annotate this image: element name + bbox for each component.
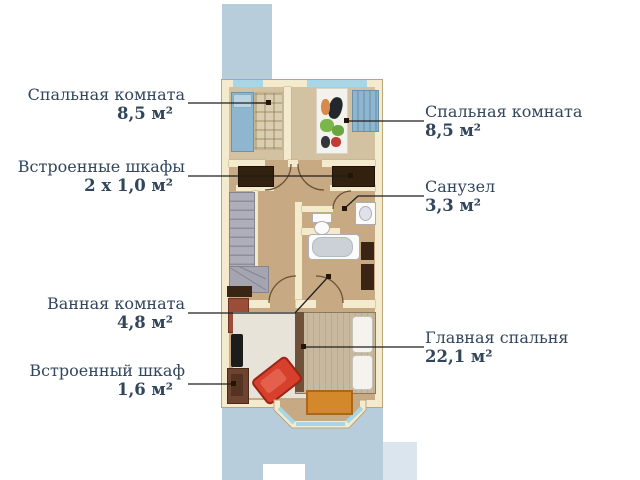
tv-console [231,334,243,367]
bath-cabinet-2 [361,264,374,290]
wall-wc-left [295,202,302,308]
bed-right [352,90,379,132]
washbasin-bowl [359,206,372,221]
bathtub-inner [312,237,353,257]
rug-shape-red [331,137,341,147]
staircase [229,192,255,268]
wall-master-top-3 [343,300,375,308]
room-area: 8,5 м² [425,121,630,141]
room-area: 8,5 м² [0,104,185,124]
built-in-closet-left [238,166,274,187]
room-area: 1,6 м² [0,380,185,400]
room-area: 22,1 м² [425,347,630,367]
label-bedroom-right: Спальная комната 8,5 м² [425,102,630,141]
wall-bedrooms-bottom-2 [288,160,298,167]
built-in-closet-right [332,166,375,187]
wall-bedrooms-divider [284,87,291,160]
room-name: Встроенные шкафы [0,157,185,176]
rug-shape-black-2 [321,136,330,148]
armchair-seat [259,367,287,394]
label-master-bedroom: Главная спальня 22,1 м² [425,328,630,367]
wall-wc-t [302,206,333,212]
master-pillow-2 [352,355,373,390]
rug-patterned [254,92,283,150]
room-area: 2 х 1,0 м² [0,176,185,196]
wall-master-top-2 [296,300,316,308]
room-name: Ванная комната [0,294,185,313]
roof-top [222,4,272,80]
rug-shape-green-2 [332,125,344,136]
bed-left-pillow [233,94,252,108]
hall-cabinet [227,286,252,297]
rug-colorful [316,88,348,154]
label-bedroom-left: Спальная комната 8,5 м² [0,85,185,124]
room-name: Встроенный шкаф [0,361,185,380]
label-closet-single: Встроенный шкаф 1,6 м² [0,361,185,400]
room-name: Главная спальня [425,328,630,347]
label-bathroom: Ванная комната 4,8 м² [0,294,185,333]
floor-plan-page: Спальная комната 8,5 м² Встроенные шкафы… [0,0,640,480]
window-top-left [233,80,263,87]
window-top-right [307,80,367,87]
master-pillow-1 [352,316,373,353]
roof-bottom-pale [383,442,417,480]
toilet-icon [314,221,330,235]
room-area: 3,3 м² [425,196,630,216]
roof-bottom-notch [263,464,305,480]
bath-cabinet-1 [361,242,374,260]
rug-shape-orange [321,99,330,115]
closet-single-inner [231,374,243,396]
label-wc: Санузел 3,3 м² [425,177,630,216]
room-area: 4,8 м² [0,313,185,333]
room-name: Спальная комната [425,102,630,121]
room-name: Санузел [425,177,630,196]
label-closets: Встроенные шкафы 2 х 1,0 м² [0,157,185,196]
room-name: Спальная комната [0,85,185,104]
